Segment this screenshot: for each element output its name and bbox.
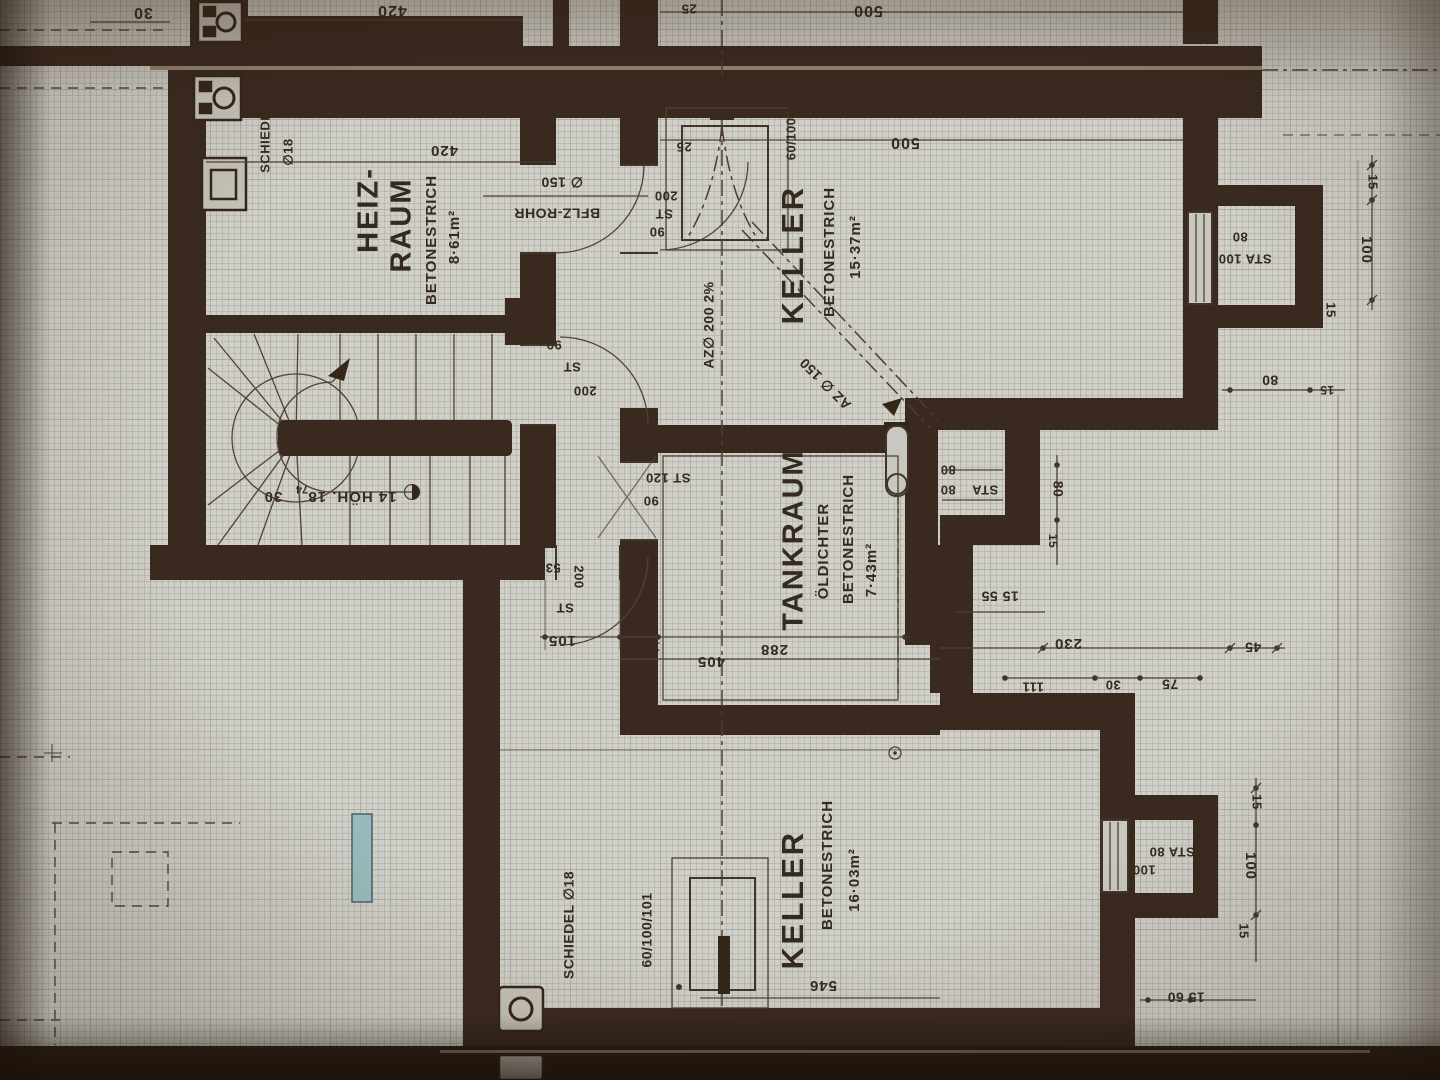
teal-highlighter-mark — [352, 814, 372, 902]
chimney-icon-next-unit — [499, 1055, 543, 1080]
dim-mid-75: 75 — [1162, 676, 1179, 692]
dim-mid-15-55: 15 55 — [981, 588, 1019, 604]
dim-105: 105 — [548, 632, 576, 649]
room-stairwell — [210, 336, 516, 542]
dim-rt-80: 80 — [1262, 372, 1279, 388]
shaft-br-100: 100 — [1132, 863, 1155, 878]
dim-mid-230: 230 — [1054, 635, 1082, 652]
door-corr-lo-53: 53 — [545, 561, 560, 576]
shaft-br-sta80: STA 80 — [1149, 845, 1195, 860]
dim-500-top: 500 — [853, 2, 883, 19]
flow-arrow — [882, 398, 902, 416]
flue-stub — [710, 76, 734, 120]
floor-plan-drawing: 30 420 25 500 HEIZ- RAUM BETONESTRICH 8·… — [0, 0, 1440, 1080]
floor-plan-photo: 30 420 25 500 HEIZ- RAUM BETONESTRICH 8·… — [0, 0, 1440, 1080]
shaft-mid-80a: 80 — [940, 463, 955, 478]
dim-rb-15b: 15 — [1237, 923, 1252, 938]
dim-mid-111: 111 — [1022, 680, 1044, 695]
dim-rt-15b: 15 — [1324, 302, 1339, 317]
room-keller-bottom — [504, 736, 1098, 1006]
door-corr-up-st: ST — [563, 360, 581, 375]
dim-mid-15: 15 — [1046, 534, 1060, 548]
shaft-tr-sta100: STA 100 — [1218, 252, 1271, 267]
pipe-bflz-label: BFLZ-ROHR — [514, 205, 600, 221]
room-tankraum — [662, 456, 902, 702]
shaft-mid-sta: STA — [972, 483, 999, 498]
dim-rb-100: 100 — [1242, 852, 1259, 880]
door-corr-lo-200: 200 — [572, 565, 587, 588]
chimney-icon-party-wall — [194, 76, 241, 120]
door-corr-up-200: 200 — [573, 384, 596, 399]
door-tank-90: 90 — [643, 494, 658, 509]
pipe-dia-label: ∅ 150 — [541, 174, 583, 190]
dim-rt-15c: 15 — [1320, 383, 1334, 397]
door-corr-lo-st: ST — [556, 601, 574, 616]
room-heizraum — [210, 122, 518, 312]
shaft-mid-80b: 80 — [940, 483, 955, 498]
dim-mid-45: 45 — [1245, 639, 1262, 655]
dim-rb-15-60: 15 60 — [1167, 989, 1205, 1005]
dim-25-top: 25 — [681, 2, 696, 17]
dim-12: 12 — [644, 639, 661, 655]
dim-420-top: 420 — [377, 2, 407, 19]
dim-mid-30: 30 — [1105, 678, 1120, 693]
chimney-icon-top-strip — [198, 2, 242, 42]
room-keller-top — [662, 122, 1180, 396]
dim-mid-80: 80 — [1050, 481, 1066, 498]
door-corr-up-90: 90 — [546, 338, 561, 353]
dim-rt-15a: 15 — [1366, 174, 1381, 189]
shaft-tr-80: 80 — [1232, 230, 1247, 245]
dim-30-top: 30 — [133, 4, 153, 21]
dim-rt-100: 100 — [1358, 236, 1375, 264]
dim-rb-15a: 15 — [1250, 794, 1265, 809]
